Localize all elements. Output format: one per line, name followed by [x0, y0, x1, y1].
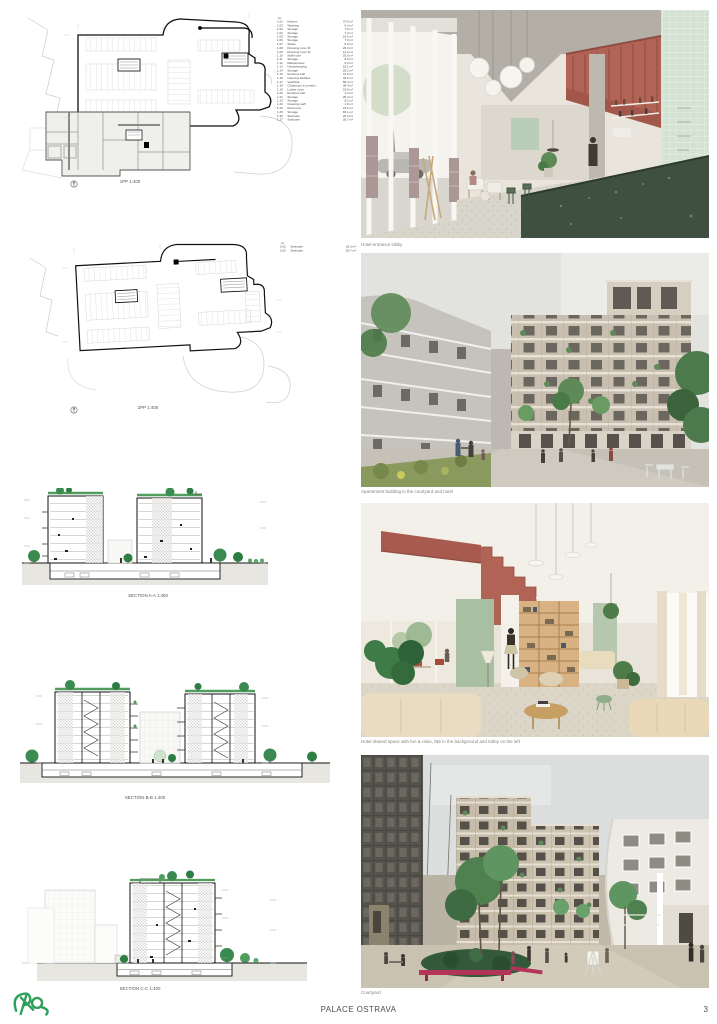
legend-row: 1.27 Staircase 20,7 m² — [277, 118, 353, 122]
section-aa-drawing — [20, 488, 270, 588]
presentation-board: m² 1.01 Kitchen 37,5 m² 1.02 Washing 6,3… — [0, 0, 717, 1024]
building-right — [137, 488, 202, 563]
plan-2pp-drawing — [8, 238, 353, 406]
section-cc-drawing — [12, 870, 342, 984]
coffee-machine — [613, 128, 631, 137]
render-courtyard-illustration — [361, 755, 709, 988]
far-building — [491, 349, 511, 449]
render-apartment-courtyard — [361, 253, 709, 487]
tower-left — [55, 680, 138, 763]
render-hotel-lobby — [361, 10, 709, 238]
garage-level-2 — [75, 240, 273, 357]
tower-right — [177, 682, 255, 763]
render-caption: Hotel entrance lobby — [361, 242, 671, 247]
render-caption: Courtyard — [361, 990, 671, 995]
section-bb-drawing — [12, 664, 342, 789]
back-green-wall — [511, 118, 539, 150]
page-number: 3 — [704, 1005, 708, 1014]
legend-rows: 2.01 Staircase 20,3 m² 2.02 Staircase 20… — [280, 245, 356, 253]
studio-logo — [10, 986, 52, 1020]
hotel-basement-annex — [46, 112, 190, 176]
apartment-tower-b — [531, 825, 599, 945]
render-courtyard — [361, 755, 709, 988]
plan-2pp — [8, 238, 353, 406]
section-bb — [12, 664, 342, 789]
north-arrow-icon — [70, 406, 78, 414]
render-shared-space-illustration — [361, 503, 709, 737]
section-caption-aa: SECTION A-A 1:400 — [121, 593, 176, 598]
section-caption-bb: SECTION B-B 1:400 — [118, 795, 173, 800]
plan-caption-1pp: 1PP 1:400 — [105, 179, 155, 184]
tower — [130, 871, 222, 964]
building-left — [42, 488, 103, 563]
cafe-table — [389, 961, 403, 963]
render-apartment-courtyard-illustration — [361, 253, 709, 487]
basement — [117, 963, 232, 976]
legend-row: 2.02 Staircase 20,7 m² — [280, 249, 356, 253]
legend-rows: 1.01 Kitchen 37,5 m² 1.02 Washing 6,3 m²… — [277, 20, 353, 122]
section-caption-cc: SECTION C-C 1:400 — [113, 986, 168, 991]
window-wall — [361, 18, 457, 236]
basement — [42, 763, 302, 777]
room-legend-1pp: m² 1.01 Kitchen 37,5 m² 1.02 Washing 6,3… — [277, 16, 353, 121]
window-curtains — [657, 591, 709, 697]
north-arrow-icon — [70, 180, 78, 188]
render-shared-space — [361, 503, 709, 737]
footer-title: PALACE OSTRAVA — [0, 1005, 717, 1014]
render-caption: Hotel shared space with fun & relax, f&b… — [361, 739, 671, 744]
plan-caption-2pp: 2PP 1:400 — [123, 405, 173, 410]
seated-person — [470, 170, 475, 175]
section-cc — [12, 870, 342, 984]
basement — [50, 563, 220, 579]
courtyard-tree — [154, 750, 166, 762]
room-legend-2pp: m² 2.01 Staircase 20,3 m² 2.02 Staircase… — [280, 241, 356, 252]
section-aa — [20, 488, 270, 588]
render-hotel-lobby-illustration — [361, 10, 709, 238]
render-caption: Apartement building in the courtyard and… — [361, 489, 671, 494]
background-buildings — [28, 890, 117, 963]
